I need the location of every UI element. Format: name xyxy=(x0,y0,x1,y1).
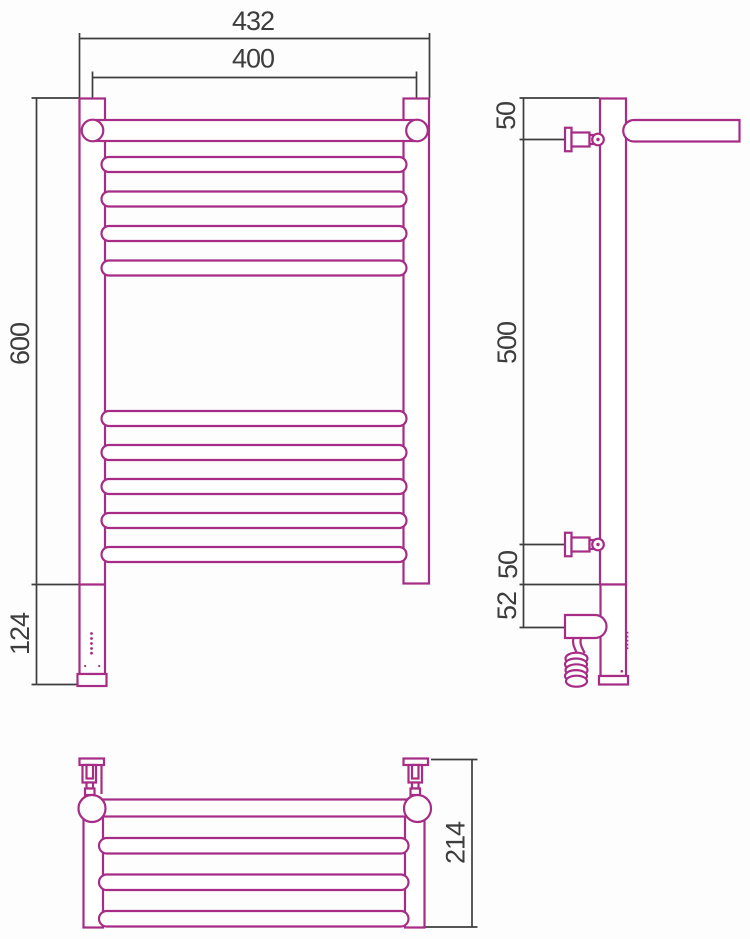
dim-label-lower-section: 124 xyxy=(5,612,35,655)
dim-label-height: 600 xyxy=(5,323,35,365)
top-view: 214 xyxy=(79,759,478,928)
indicator-dot xyxy=(621,670,624,673)
dim-label-axis-width: 400 xyxy=(232,44,274,74)
side-view: 50 500 50 52 xyxy=(491,98,740,687)
towel-rail-bar xyxy=(102,192,407,207)
wall-bracket-plan-left xyxy=(80,759,105,796)
front-view: 432 400 600 124 xyxy=(5,6,430,686)
towel-rail-bar xyxy=(102,479,407,494)
heating-unit-side-end-cap xyxy=(599,676,628,685)
dim-label-overall-width: 432 xyxy=(232,6,274,36)
towel-rail-bar xyxy=(102,513,407,528)
bracket-body-inner xyxy=(87,765,94,779)
wall-bracket-plan-right xyxy=(404,759,429,796)
wall-bracket-upper xyxy=(565,128,604,152)
power-unit-box xyxy=(565,615,607,638)
indicator-dash xyxy=(625,647,628,649)
wall-bracket-lower xyxy=(565,533,604,557)
drawing-canvas: 432 400 600 124 xyxy=(0,0,750,939)
shelf-rail-bar xyxy=(99,911,409,927)
shelf-side-arm-right xyxy=(405,808,425,928)
indicator-dash xyxy=(625,644,628,646)
led-dot xyxy=(90,642,93,645)
indicator-dash xyxy=(625,640,628,642)
technical-drawing: 432 400 600 124 xyxy=(0,0,750,939)
bracket-ball-center-dot xyxy=(596,138,599,141)
towel-rail-bar xyxy=(102,226,407,241)
post-plan-right xyxy=(404,795,431,822)
dim-label-element-axis: 52 xyxy=(492,592,522,620)
left-collector-joint xyxy=(82,120,104,142)
post-plan-left xyxy=(79,795,106,822)
screw-dot xyxy=(98,665,100,667)
shelf-side-arm-left xyxy=(84,808,104,928)
dim-label-top-to-bracket: 50 xyxy=(491,102,521,130)
right-collector-joint xyxy=(406,120,428,142)
towel-rail-bar xyxy=(102,157,407,172)
indicator-dash xyxy=(625,632,628,634)
indicator-dash xyxy=(625,636,628,638)
dim-label-shelf-depth: 214 xyxy=(441,821,471,864)
rail-group-upper xyxy=(102,157,407,276)
shelf-bar-side-profile xyxy=(623,120,739,142)
cable-coil-loop xyxy=(566,676,587,687)
bracket-body xyxy=(572,538,590,552)
right-post xyxy=(404,99,430,584)
towel-rail-bar xyxy=(102,411,407,426)
towel-rail-bar xyxy=(102,547,407,562)
post-side-profile xyxy=(600,99,626,585)
led-dot xyxy=(90,637,93,640)
shelf-rail-bar xyxy=(99,838,409,854)
screw-dot xyxy=(84,665,86,667)
bracket-body-inner xyxy=(412,765,419,779)
towel-rail-bar xyxy=(102,445,407,460)
heating-unit-end-cap xyxy=(78,674,107,686)
shelf-rails xyxy=(99,838,409,927)
shelf-rail-bar xyxy=(99,875,409,891)
dim-label-bracket-spacing: 500 xyxy=(492,322,522,364)
towel-rail-bar xyxy=(102,261,407,276)
left-post xyxy=(80,99,106,675)
power-cord xyxy=(573,638,585,654)
coiled-cable xyxy=(565,653,588,687)
top-bar-plan xyxy=(92,800,418,817)
bracket-body xyxy=(572,133,590,147)
led-dot xyxy=(90,652,93,655)
rail-group-lower xyxy=(102,411,407,562)
led-dot xyxy=(90,632,93,635)
top-rail-bar xyxy=(95,120,414,141)
led-dot xyxy=(90,647,93,650)
bracket-ball-center-dot xyxy=(596,543,599,546)
dim-label-bracket-to-base: 50 xyxy=(493,551,523,579)
